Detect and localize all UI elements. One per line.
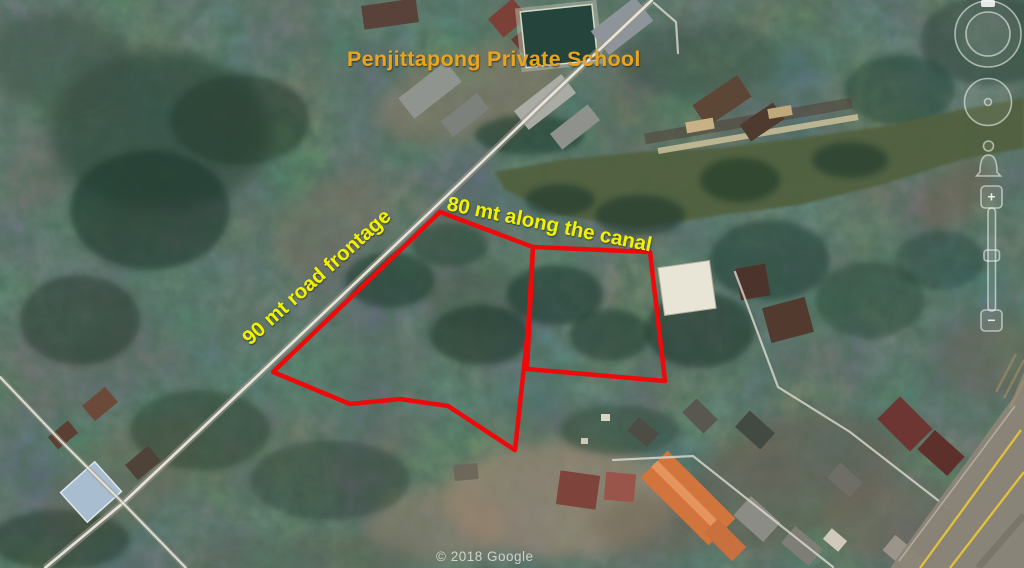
move-joystick-hub <box>985 99 992 106</box>
google-attribution: © 2018 Google <box>436 549 534 564</box>
zoom-handle[interactable] <box>984 250 1000 261</box>
school-label: Penjittapong Private School <box>347 47 641 71</box>
zoom-in-glyph: + <box>987 189 995 205</box>
look-joystick-inner[interactable] <box>966 12 1010 56</box>
zoom-out-glyph: − <box>987 312 995 328</box>
white-roof-building <box>658 261 716 316</box>
satellite-map-viewport[interactable]: Penjittapong Private School 80 mt along … <box>0 0 1024 568</box>
terrain <box>0 0 1024 568</box>
